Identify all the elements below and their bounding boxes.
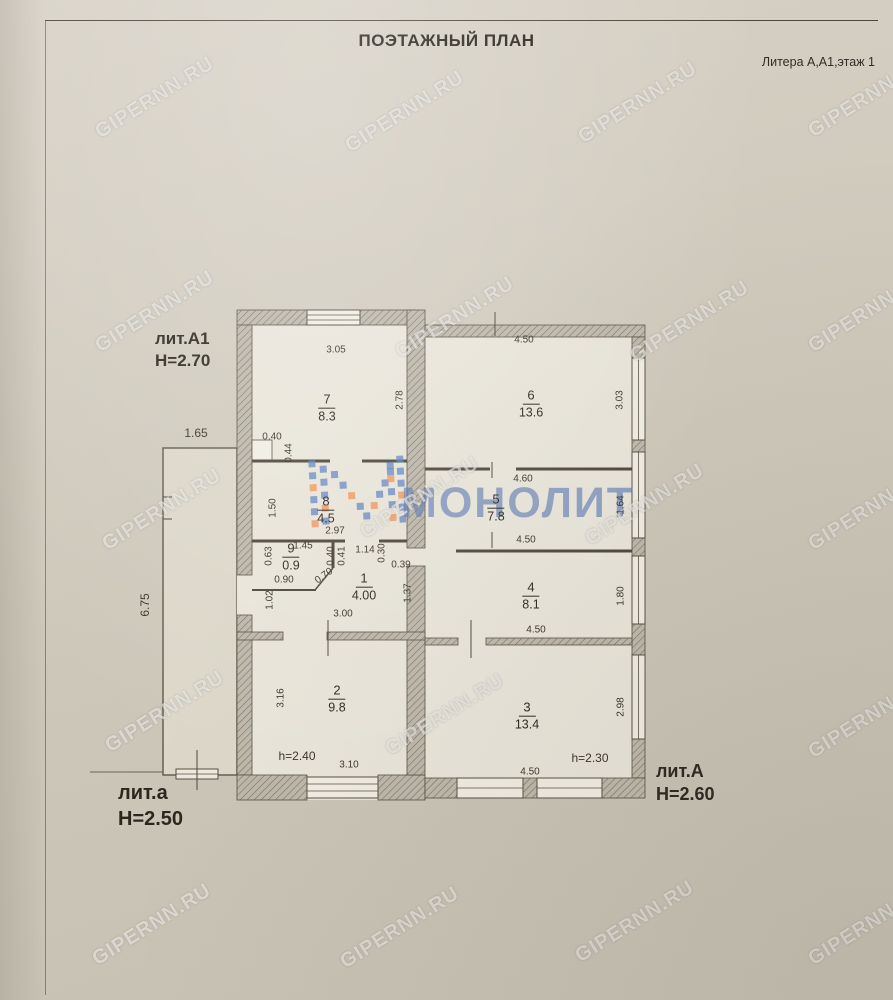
porch-lit-a (163, 448, 237, 779)
building-a1-interior (237, 310, 425, 800)
brand-watermark: МОНОЛИТ (401, 482, 635, 525)
scanned-floor-plan-page: ПОЭТАЖНЫЙ ПЛАН Литера А,А1,этаж 1 (0, 0, 893, 1000)
monolit-logo-icon (306, 450, 406, 535)
building-a-interior (415, 325, 645, 790)
